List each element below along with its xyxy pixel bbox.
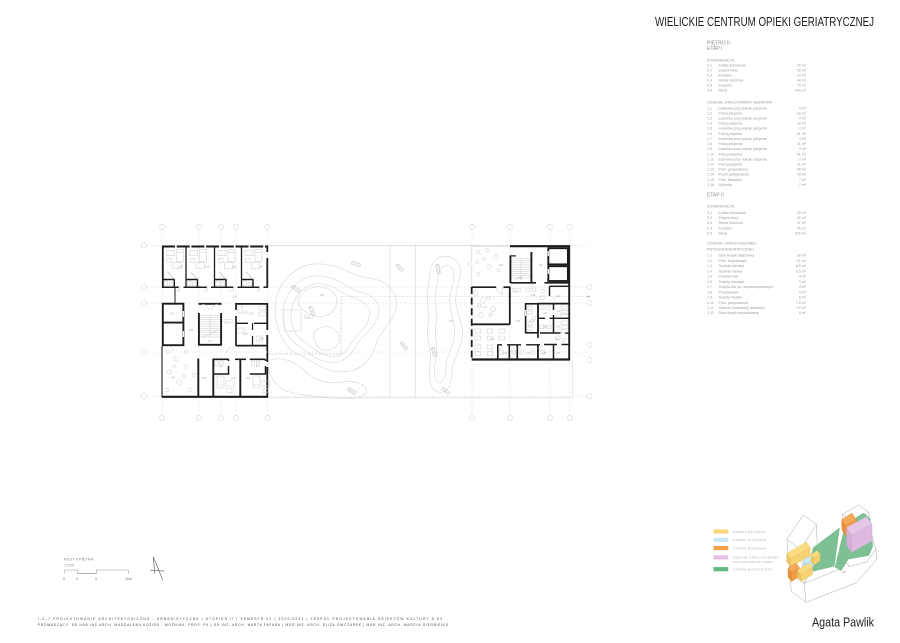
svg-text:ODDZIAŁ OPIEKI DZIENNEJ: ODDZIAŁ OPIEKI DZIENNEJ bbox=[733, 556, 780, 560]
svg-text:4 m²: 4 m² bbox=[799, 106, 807, 110]
svg-text:0: 0 bbox=[63, 577, 65, 581]
svg-text:1.14: 1.14 bbox=[248, 312, 254, 316]
svg-text:0.2: 0.2 bbox=[170, 312, 174, 316]
svg-text:STREFA PACJENTA: STREFA PACJENTA bbox=[733, 530, 766, 534]
svg-text:6,5 m²: 6,5 m² bbox=[796, 269, 807, 273]
svg-text:1.1: 1.1 bbox=[256, 364, 260, 368]
svg-text:1.13Pom. gospodarcze: 1.13Pom. gospodarcze bbox=[707, 168, 748, 172]
svg-text:STREFA KLINICZNA: STREFA KLINICZNA bbox=[733, 538, 766, 542]
svg-text:0.5: 0.5 bbox=[233, 295, 237, 299]
svg-text:10m: 10m bbox=[125, 577, 132, 581]
svg-text:4 m²: 4 m² bbox=[799, 275, 807, 279]
svg-text:4 m²: 4 m² bbox=[799, 285, 807, 289]
svg-text:1.12: 1.12 bbox=[555, 294, 561, 298]
svg-text:28 m²: 28 m² bbox=[797, 168, 807, 172]
svg-text:28 m²: 28 m² bbox=[797, 254, 807, 258]
svg-text:0.4Korytarz: 0.4Korytarz bbox=[707, 226, 732, 230]
svg-text:KOMUNIKACJA: KOMUNIKACJA bbox=[707, 205, 735, 209]
svg-text:21 m²: 21 m² bbox=[797, 152, 807, 156]
svg-text:1.3: 1.3 bbox=[556, 309, 560, 313]
svg-text:10 m²: 10 m² bbox=[797, 306, 807, 310]
svg-text:1.8: 1.8 bbox=[232, 265, 236, 269]
svg-text:12,00: 12,00 bbox=[225, 321, 231, 323]
svg-text:ODDZIAŁ OPIEKI DZIENNEJ: ODDZIAŁ OPIEKI DZIENNEJ bbox=[707, 241, 757, 245]
svg-text:ODDZIAŁ STACJONARNY GERIATRII: ODDZIAŁ STACJONARNY GERIATRII bbox=[707, 100, 772, 104]
svg-text:WIELICKIE CENTRUM OPIEKI GERIA: WIELICKIE CENTRUM OPIEKI GERIATRYCZNEJ bbox=[655, 15, 874, 29]
svg-text:14 m²: 14 m² bbox=[797, 74, 807, 78]
svg-text:0.5: 0.5 bbox=[189, 328, 193, 332]
svg-text:ETAP II: ETAP II bbox=[707, 193, 724, 199]
svg-text:37 m²: 37 m² bbox=[797, 221, 807, 225]
svg-text:1.4: 1.4 bbox=[219, 364, 223, 368]
svg-text:1.13: 1.13 bbox=[201, 376, 207, 380]
svg-text:3 m²: 3 m² bbox=[799, 157, 807, 161]
svg-text:5: 5 bbox=[95, 577, 97, 581]
svg-text:0.5Korytarz: 0.5Korytarz bbox=[707, 83, 732, 87]
svg-text:1.5: 1.5 bbox=[503, 351, 507, 355]
svg-text:0.4: 0.4 bbox=[171, 376, 175, 380]
svg-text:STREFA RODZINNA: STREFA RODZINNA bbox=[733, 546, 766, 550]
svg-text:44 m²: 44 m² bbox=[797, 78, 807, 82]
svg-text:27 m²: 27 m² bbox=[797, 259, 807, 263]
svg-text:0.6: 0.6 bbox=[320, 293, 324, 297]
svg-text:1.4: 1.4 bbox=[556, 325, 560, 329]
svg-text:PSYCHOGERIATRYCZNEJ: PSYCHOGERIATRYCZNEJ bbox=[733, 560, 774, 564]
svg-text:1.15: 1.15 bbox=[242, 332, 248, 336]
svg-text:45 m²: 45 m² bbox=[797, 226, 807, 230]
svg-text:STREFA WYPOCZYNKU: STREFA WYPOCZYNKU bbox=[733, 568, 772, 572]
svg-text:PSYCHOGERIATRYCZNEJ: PSYCHOGERIATRYCZNEJ bbox=[707, 248, 754, 252]
svg-text:1.10Pom. gospodarcze: 1.10Pom. gospodarcze bbox=[707, 301, 748, 305]
svg-text:7,5 m²: 7,5 m² bbox=[796, 301, 807, 305]
svg-text:4 m²: 4 m² bbox=[799, 290, 807, 294]
svg-text:21 m²: 21 m² bbox=[797, 142, 807, 146]
svg-text:1.15Pom. lekarskie: 1.15Pom. lekarskie bbox=[707, 178, 742, 182]
svg-text:1.8Przedsionek: 1.8Przedsionek bbox=[707, 290, 738, 294]
svg-text:1.12Pokój pacjenta: 1.12Pokój pacjenta bbox=[707, 163, 742, 167]
svg-text:73 m²: 73 m² bbox=[797, 83, 807, 87]
svg-text:RZUT II PIĘTRA: RZUT II PIĘTRA bbox=[64, 557, 94, 562]
svg-text:1.2: 1.2 bbox=[490, 337, 494, 341]
svg-text:1.5: 1.5 bbox=[543, 325, 547, 329]
svg-text:1.6: 1.6 bbox=[259, 265, 263, 269]
svg-text:0.1: 0.1 bbox=[208, 339, 212, 343]
svg-text:4 m²: 4 m² bbox=[799, 117, 807, 121]
svg-text:8 m²: 8 m² bbox=[799, 311, 807, 315]
svg-text:440 m²: 440 m² bbox=[795, 88, 807, 92]
svg-text:1.16: 1.16 bbox=[258, 337, 264, 341]
svg-text:5 m²: 5 m² bbox=[799, 296, 807, 300]
svg-text:1.11: 1.11 bbox=[531, 293, 536, 297]
svg-text:18 m²: 18 m² bbox=[797, 122, 807, 126]
svg-text:1.9: 1.9 bbox=[556, 351, 560, 355]
svg-text:0.2Zespół wind: 0.2Zespół wind bbox=[707, 216, 738, 220]
svg-text:1.6: 1.6 bbox=[526, 351, 530, 355]
svg-text:20 m²: 20 m² bbox=[797, 64, 807, 68]
svg-text:Agata Pawlik: Agata Pawlik bbox=[812, 615, 874, 630]
svg-text:1.14Punkt pielęgniarski: 1.14Punkt pielęgniarski bbox=[707, 173, 749, 177]
svg-text:6,5 m²: 6,5 m² bbox=[796, 264, 807, 268]
svg-text:1.16Dyżurka: 1.16Dyżurka bbox=[707, 183, 732, 187]
svg-text:5 m²: 5 m² bbox=[799, 280, 807, 284]
svg-text:21 m²: 21 m² bbox=[797, 132, 807, 136]
svg-text:10,45: 10,45 bbox=[306, 317, 312, 319]
svg-text:7 m²: 7 m² bbox=[799, 183, 807, 187]
svg-text:I-C-7 PROJEKTOWANIE ARCHITEKTO: I-C-7 PROJEKTOWANIE ARCHITEKTONICZNO - U… bbox=[38, 616, 442, 621]
svg-text:0.1: 0.1 bbox=[519, 276, 523, 280]
svg-text:1.2: 1.2 bbox=[246, 376, 250, 380]
svg-text:3 m²: 3 m² bbox=[799, 137, 807, 141]
svg-text:2: 2 bbox=[76, 577, 78, 581]
svg-text:0.3: 0.3 bbox=[499, 263, 503, 267]
svg-text:1.7: 1.7 bbox=[555, 338, 559, 342]
svg-text:KOMUNIKACJA: KOMUNIKACJA bbox=[707, 59, 735, 63]
svg-text:0.4: 0.4 bbox=[516, 319, 520, 323]
svg-text:1.8: 1.8 bbox=[542, 351, 546, 355]
svg-text:1.10: 1.10 bbox=[204, 265, 210, 269]
svg-text:1.5Przedsionek: 1.5Przedsionek bbox=[707, 275, 738, 279]
svg-text:PROWADZĄCY: DR HAB.INŻ.ARCH. M: PROWADZĄCY: DR HAB.INŻ.ARCH. MAGDALENA K… bbox=[38, 622, 449, 627]
svg-text:0.3Korytarz: 0.3Korytarz bbox=[707, 74, 732, 78]
svg-text:225 m²: 225 m² bbox=[795, 232, 807, 236]
svg-text:21 m²: 21 m² bbox=[797, 163, 807, 167]
svg-text:3 m²: 3 m² bbox=[799, 127, 807, 131]
svg-text:0.2Zespół wind: 0.2Zespół wind bbox=[707, 69, 738, 73]
svg-text:1.12: 1.12 bbox=[177, 265, 183, 269]
svg-text:1.3: 1.3 bbox=[231, 376, 235, 380]
svg-text:1.10: 1.10 bbox=[530, 319, 536, 323]
svg-text:10,45: 10,45 bbox=[514, 290, 520, 292]
svg-text:18 m²: 18 m² bbox=[797, 111, 807, 115]
svg-text:1.10Pokój pacjenta: 1.10Pokój pacjenta bbox=[707, 152, 742, 156]
svg-text:32 m²: 32 m² bbox=[797, 216, 807, 220]
svg-text:1.6: 1.6 bbox=[543, 311, 547, 315]
svg-text:7 m²: 7 m² bbox=[799, 178, 807, 182]
svg-text:1.1: 1.1 bbox=[483, 305, 487, 309]
svg-text:ETAP I: ETAP I bbox=[707, 46, 722, 52]
svg-text:15 m²: 15 m² bbox=[797, 173, 807, 177]
svg-text:15 m²: 15 m² bbox=[797, 69, 807, 73]
svg-text:0.2: 0.2 bbox=[539, 263, 543, 267]
svg-text:3 m²: 3 m² bbox=[799, 147, 807, 151]
svg-text:20 m²: 20 m² bbox=[797, 211, 807, 215]
svg-text:1:200: 1:200 bbox=[64, 563, 75, 568]
